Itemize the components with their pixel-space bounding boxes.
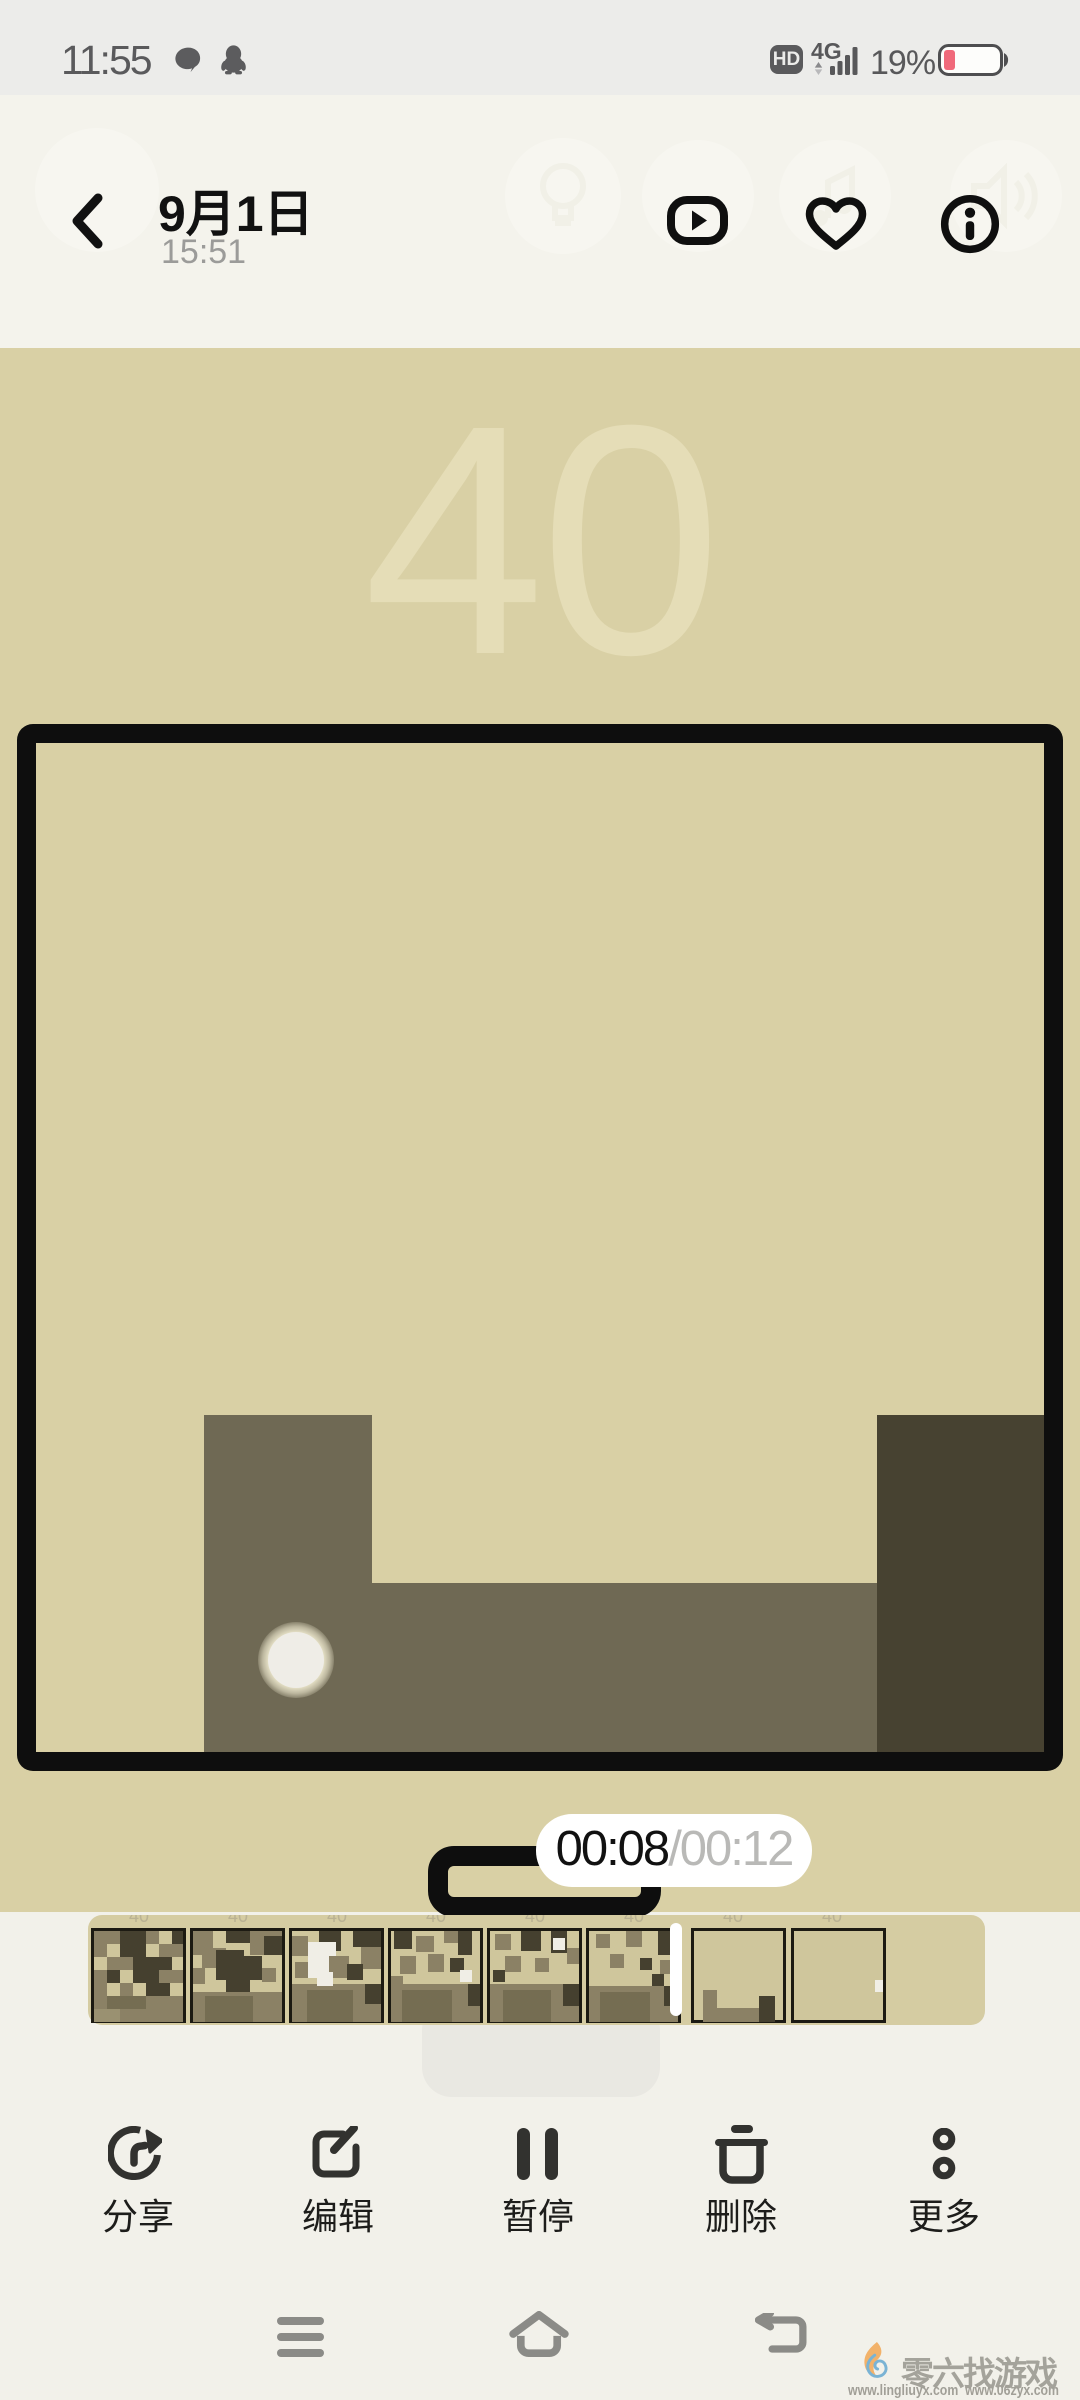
svg-text:40: 40 [426,1915,446,1926]
svg-text:40: 40 [624,1915,644,1926]
svg-text:40: 40 [129,1915,149,1926]
svg-text:40: 40 [525,1915,545,1926]
svg-text:40: 40 [327,1915,347,1926]
svg-text:40: 40 [228,1915,248,1926]
svg-text:40: 40 [723,1915,743,1926]
svg-text:40: 40 [822,1915,842,1926]
